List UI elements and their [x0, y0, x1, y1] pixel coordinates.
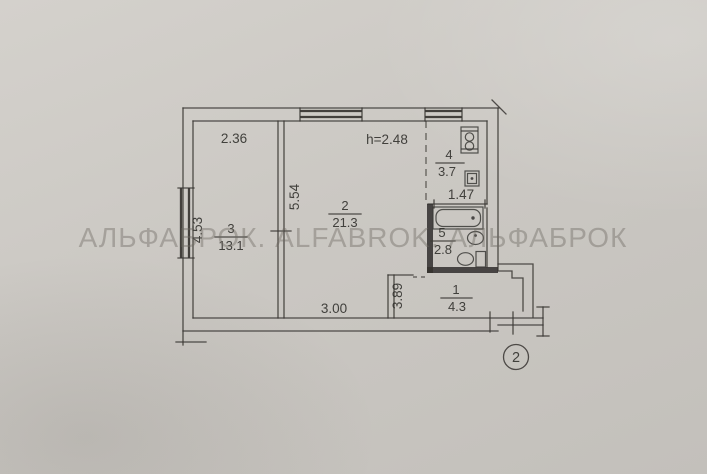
window-top-left-icon [300, 108, 362, 121]
living-width-dim: 3.00 [321, 301, 347, 316]
kitchen-number: 4 [445, 147, 452, 162]
window-top-right-icon [425, 108, 462, 121]
sheet-number: 2 [512, 350, 520, 366]
kitchen-area: 3.7 [438, 164, 456, 179]
agency-watermark: АЛЬФАБРОК. ALFABROK. АЛЬФАБРОК [79, 222, 628, 253]
living-number: 2 [341, 198, 348, 213]
floor-plan-drawing: 2.36 h=2.48 4.53 5.54 3.00 3.89 1.47 3 1… [0, 0, 707, 474]
ceiling-height-note: h=2.48 [366, 132, 408, 147]
hall-depth-dim: 3.89 [390, 283, 405, 309]
sheet-number-badge: 2 [504, 345, 529, 370]
kitchen-label: 4 3.7 [436, 147, 464, 179]
stove-icon [461, 127, 478, 153]
bedroom-width-dim: 2.36 [221, 131, 247, 146]
hallway-number: 1 [452, 282, 459, 297]
kitchen-sink-icon [465, 171, 479, 186]
hallway-label: 1 4.3 [441, 282, 472, 314]
floor-plan-scan: 2.36 h=2.48 4.53 5.54 3.00 3.89 1.47 3 1… [0, 0, 707, 474]
top-right-tick [492, 100, 506, 114]
kitchen-width-dim: 1.47 [448, 187, 474, 202]
room-depth-dim: 5.54 [287, 183, 302, 210]
hallway-area: 4.3 [448, 299, 466, 314]
toilet-icon [458, 252, 486, 268]
